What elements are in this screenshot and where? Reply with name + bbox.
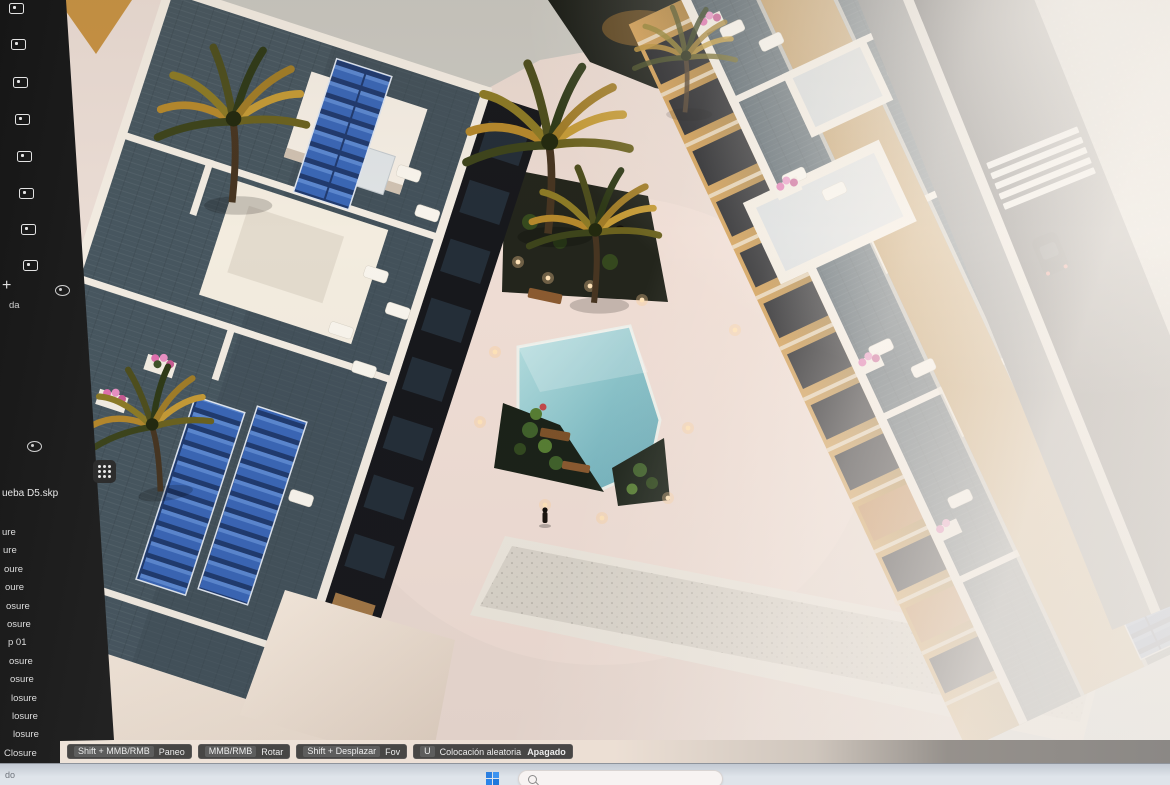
viewport-3d[interactable]: [0, 0, 1170, 785]
text-fragment-do: do: [5, 770, 15, 780]
model-file-label: ueba D5.skp: [2, 488, 58, 499]
windows-start-button[interactable]: [486, 772, 499, 785]
list-item[interactable]: oure: [0, 561, 118, 579]
camera-keyframe-icon[interactable]: [11, 39, 26, 50]
windows-logo-quadrant: [486, 779, 492, 785]
hint-rotate-keys: MMB/RMB: [205, 746, 257, 757]
camera-keyframe-icon[interactable]: [15, 114, 30, 125]
hint-random-placement-action: Colocación aleatoria: [440, 747, 522, 757]
list-item[interactable]: osure: [0, 616, 118, 634]
text-fragment-da: da: [9, 300, 20, 311]
camera-keyframe-icon[interactable]: [23, 260, 38, 271]
list-item[interactable]: osure: [0, 653, 118, 671]
camera-keyframe-icon[interactable]: [19, 188, 34, 199]
hint-pan-action: Paneo: [159, 747, 185, 757]
windows-logo-quadrant: [493, 779, 499, 785]
windows-logo-quadrant: [486, 772, 492, 778]
scene-object-list: ure ure oure oure osure osure p 01 osure…: [0, 524, 118, 763]
camera-keyframe-icon[interactable]: [17, 151, 32, 162]
list-item[interactable]: ure: [0, 542, 118, 560]
windows-logo-quadrant: [493, 772, 499, 778]
hint-rotate: MMB/RMB Rotar: [198, 744, 291, 759]
viewport-3d-render[interactable]: [0, 0, 1170, 785]
list-item[interactable]: oure: [0, 579, 118, 597]
apps-grid-icon[interactable]: [93, 460, 116, 483]
hint-fov: Shift + Desplazar Fov: [296, 744, 407, 759]
screen-photo: + da ueba D5.skp ure ure oure oure osure…: [0, 0, 1170, 785]
add-icon[interactable]: +: [2, 278, 11, 294]
hint-random-placement-keys: U: [420, 746, 435, 757]
camera-keyframe-icon[interactable]: [9, 3, 24, 14]
list-item[interactable]: osure: [0, 671, 118, 689]
hint-random-placement-state: Apagado: [527, 747, 566, 757]
search-icon: [528, 775, 537, 784]
visibility-eye-icon[interactable]: [27, 441, 42, 452]
list-item[interactable]: osure: [0, 598, 118, 616]
list-item[interactable]: losure: [0, 708, 118, 726]
hint-pan: Shift + MMB/RMB Paneo: [67, 744, 192, 759]
hint-random-placement: U Colocación aleatoria Apagado: [413, 744, 573, 759]
hint-rotate-action: Rotar: [261, 747, 283, 757]
viewport-hint-bar: Shift + MMB/RMB Paneo MMB/RMB Rotar Shif…: [58, 740, 1170, 763]
camera-keyframe-icon[interactable]: [13, 77, 28, 88]
taskbar-search[interactable]: [518, 770, 723, 785]
list-item[interactable]: losure: [0, 690, 118, 708]
windows-taskbar: do: [0, 763, 1170, 785]
hint-fov-keys: Shift + Desplazar: [303, 746, 380, 757]
visibility-eye-icon[interactable]: [55, 285, 70, 296]
list-item[interactable]: p 01: [0, 634, 118, 652]
hint-fov-action: Fov: [385, 747, 400, 757]
camera-keyframe-icon[interactable]: [21, 224, 36, 235]
hint-pan-keys: Shift + MMB/RMB: [74, 746, 154, 757]
